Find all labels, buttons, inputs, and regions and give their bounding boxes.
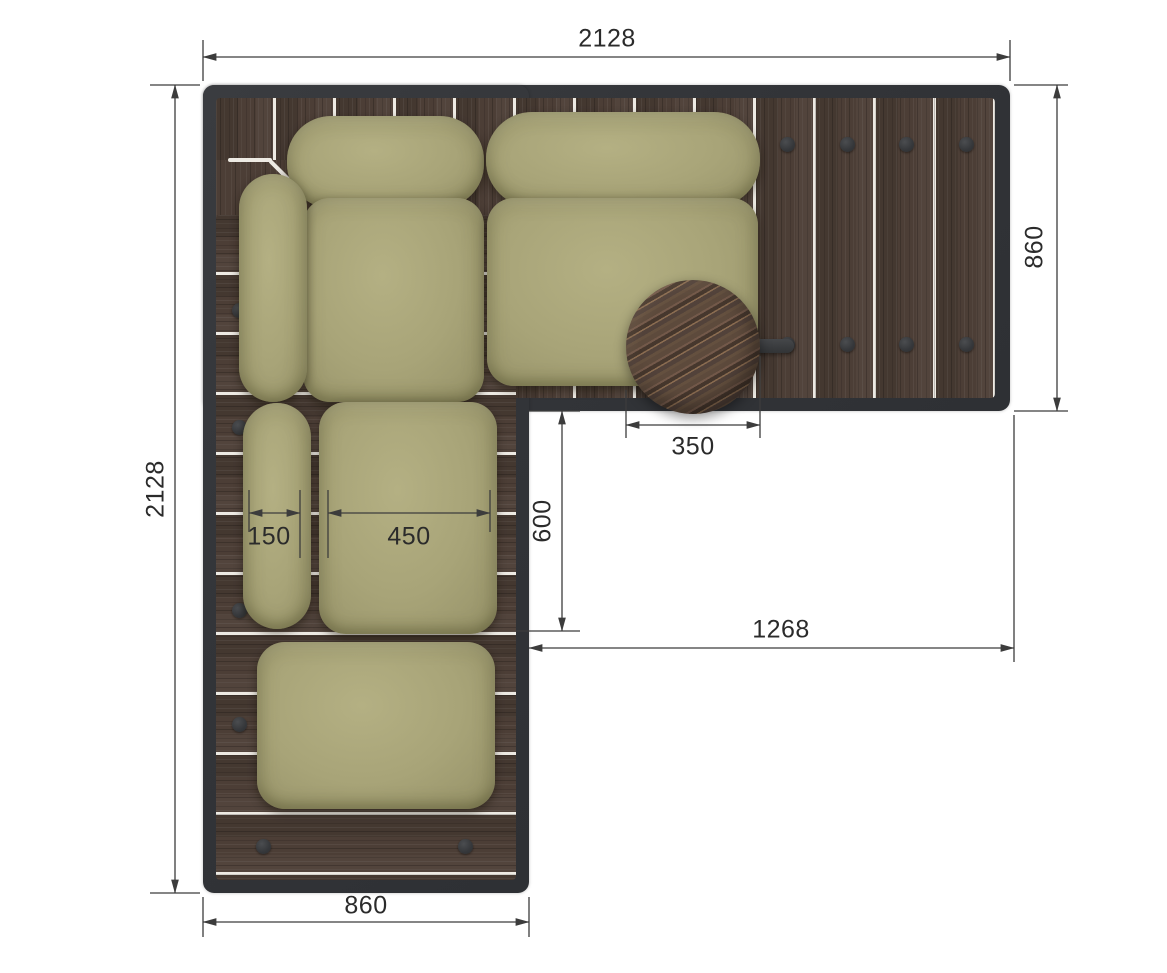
dim-label-back-cushion-width: 150 bbox=[247, 523, 290, 552]
dim-label-right-depth: 860 bbox=[1021, 225, 1050, 268]
dim-label-overall-height: 2128 bbox=[142, 460, 171, 518]
dimension-lines bbox=[0, 0, 1167, 973]
dim-label-seat-cushion-width: 450 bbox=[387, 523, 430, 552]
dim-label-corner-offset: 600 bbox=[529, 499, 558, 542]
dim-label-inner-width: 1268 bbox=[752, 616, 810, 645]
dim-label-table-diameter: 350 bbox=[671, 433, 714, 462]
dim-label-left-width: 860 bbox=[344, 892, 387, 921]
sofa-plan-drawing: 2128 2128 860 860 350 600 1268 150 450 bbox=[0, 0, 1167, 973]
dim-label-overall-width: 2128 bbox=[578, 25, 636, 54]
